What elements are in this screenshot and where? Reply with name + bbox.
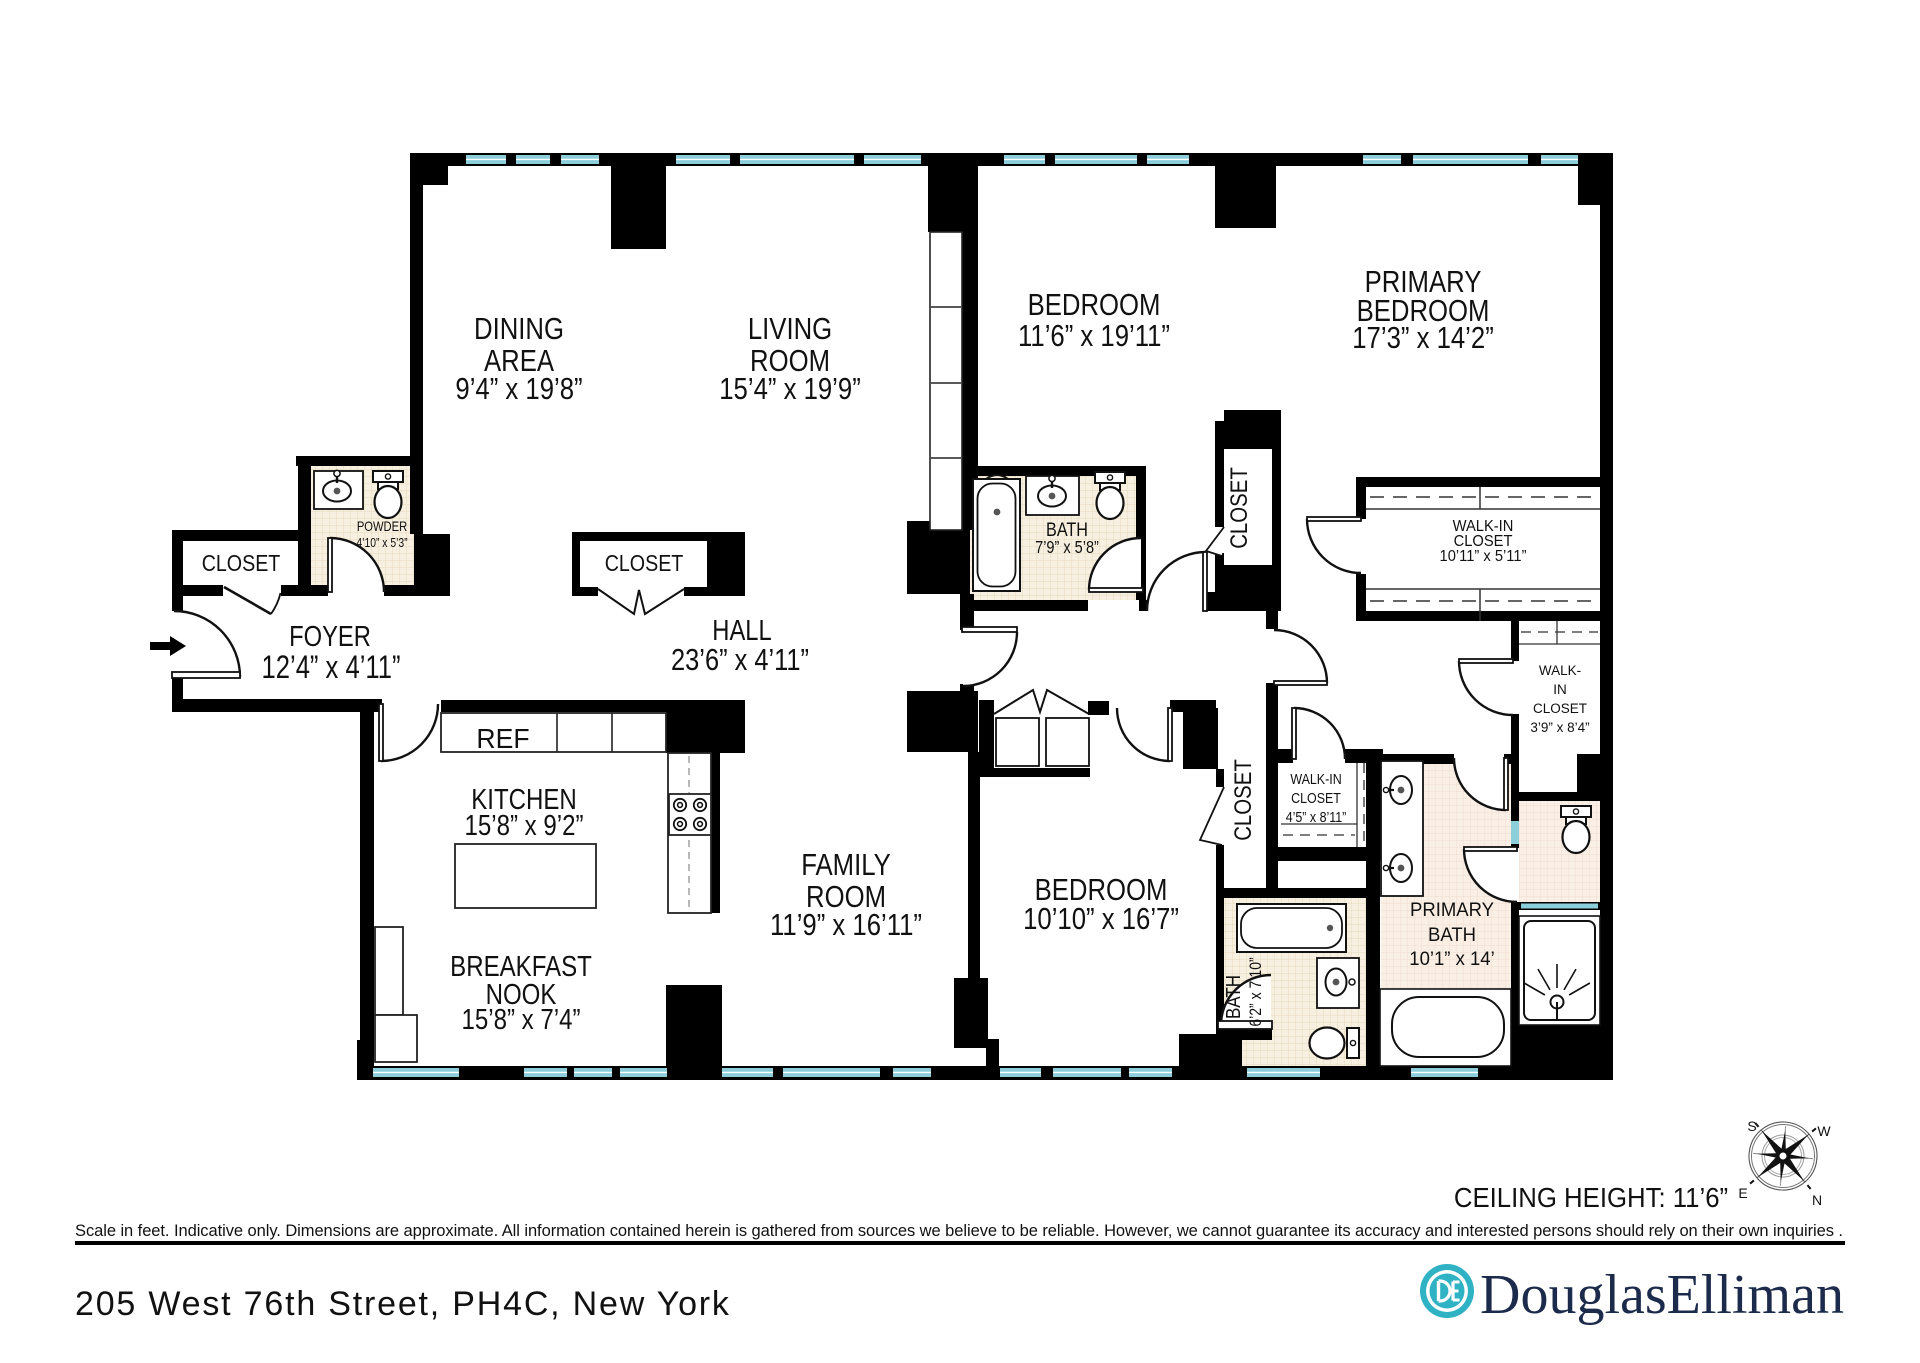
- svg-text:DouglasElliman: DouglasElliman: [1480, 1264, 1844, 1326]
- svg-text:10’1” x 14’: 10’1” x 14’: [1409, 949, 1494, 971]
- svg-text:E: E: [1738, 1185, 1747, 1201]
- svg-text:POWDER: POWDER: [357, 519, 407, 534]
- svg-text:LIVING: LIVING: [748, 312, 832, 347]
- svg-text:17’3” x 14’2”: 17’3” x 14’2”: [1352, 321, 1494, 356]
- svg-text:HALL: HALL: [712, 614, 771, 647]
- svg-text:CLOSET: CLOSET: [1291, 790, 1341, 806]
- svg-text:12’4” x 4’11”: 12’4” x 4’11”: [262, 650, 401, 685]
- svg-text:CLOSET: CLOSET: [1225, 467, 1252, 549]
- svg-text:Scale in feet. Indicative only: Scale in feet. Indicative only. Dimensio…: [75, 1222, 1843, 1240]
- svg-text:PRIMARY: PRIMARY: [1410, 900, 1494, 922]
- svg-text:15’4” x 19’9”: 15’4” x 19’9”: [719, 372, 861, 407]
- svg-text:7’9” x 5’8”: 7’9” x 5’8”: [1035, 538, 1099, 558]
- svg-text:205 West 76th Street, PH4C, Ne: 205 West 76th Street, PH4C, New York: [75, 1285, 731, 1323]
- svg-text:REF: REF: [476, 722, 529, 754]
- svg-text:4’10” x 5’3”: 4’10” x 5’3”: [356, 537, 407, 550]
- svg-text:CLOSET: CLOSET: [1229, 759, 1256, 841]
- svg-text:15’8” x 7’4”: 15’8” x 7’4”: [462, 1003, 581, 1036]
- svg-text:WALK-IN: WALK-IN: [1290, 771, 1341, 787]
- svg-text:FAMILY: FAMILY: [801, 848, 891, 883]
- svg-text:10’10” x 16’7”: 10’10” x 16’7”: [1023, 902, 1179, 937]
- svg-text:15’8” x 9’2”: 15’8” x 9’2”: [465, 809, 584, 842]
- svg-text:DINING: DINING: [474, 312, 564, 347]
- svg-text:6’2” x 7’10”: 6’2” x 7’10”: [1247, 957, 1265, 1026]
- svg-text:3’9” x 8’4”: 3’9” x 8’4”: [1530, 720, 1589, 735]
- svg-text:IN: IN: [1553, 682, 1567, 697]
- svg-text:S: S: [1747, 1118, 1756, 1134]
- svg-text:WALK-: WALK-: [1539, 663, 1581, 678]
- svg-text:4’5” x 8’11”: 4’5” x 8’11”: [1286, 809, 1347, 825]
- svg-text:11’9” x 16’11”: 11’9” x 16’11”: [770, 908, 922, 943]
- svg-text:23’6” x 4’11”: 23’6” x 4’11”: [671, 643, 809, 678]
- svg-text:CLOSET: CLOSET: [1533, 701, 1587, 716]
- svg-text:CLOSET: CLOSET: [202, 551, 281, 577]
- svg-text:BATH: BATH: [1428, 925, 1476, 947]
- svg-text:9’4” x 19’8”: 9’4” x 19’8”: [455, 372, 582, 407]
- svg-text:11’6” x 19’11”: 11’6” x 19’11”: [1018, 319, 1170, 354]
- svg-text:BEDROOM: BEDROOM: [1028, 288, 1161, 323]
- svg-text:CLOSET: CLOSET: [605, 551, 684, 577]
- svg-text:W: W: [1817, 1123, 1831, 1139]
- svg-text:CEILING HEIGHT: 11’6”: CEILING HEIGHT: 11’6”: [1454, 1182, 1728, 1213]
- svg-text:10’11” x 5’11”: 10’11” x 5’11”: [1440, 548, 1527, 565]
- svg-text:N: N: [1812, 1192, 1822, 1208]
- svg-text:BATH: BATH: [1222, 975, 1245, 1019]
- svg-text:FOYER: FOYER: [289, 620, 371, 653]
